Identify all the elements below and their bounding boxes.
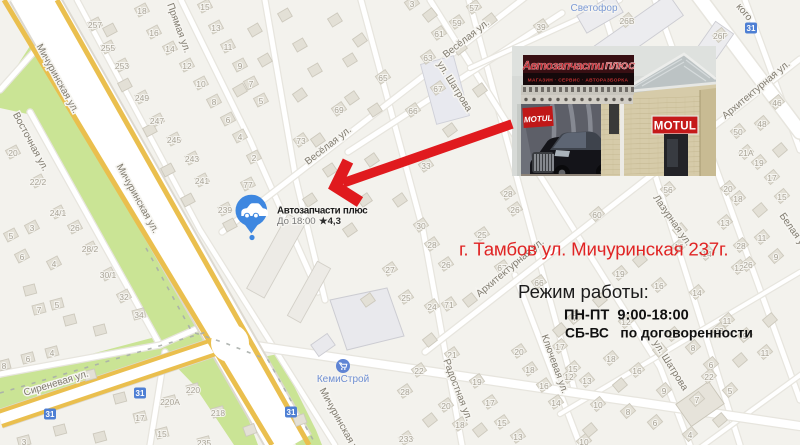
svg-text:9: 9: [238, 61, 243, 71]
svg-text:12: 12: [182, 61, 192, 71]
svg-text:5: 5: [55, 300, 60, 310]
svg-text:56: 56: [663, 185, 673, 195]
svg-text:241: 241: [195, 176, 209, 186]
svg-text:249: 249: [135, 93, 149, 103]
svg-text:14: 14: [692, 288, 702, 298]
svg-text:16: 16: [539, 381, 549, 391]
svg-text:16: 16: [632, 366, 642, 376]
svg-text:ПЛЮС: ПЛЮС: [605, 61, 635, 72]
svg-text:31: 31: [136, 389, 145, 398]
svg-text:13: 13: [513, 432, 523, 442]
svg-text:10: 10: [593, 400, 603, 410]
svg-text:9: 9: [662, 386, 667, 396]
svg-text:ПН-ПТ 9:00-18:00: ПН-ПТ 9:00-18:00: [564, 308, 689, 324]
svg-text:КемиСтрой: КемиСтрой: [317, 374, 369, 385]
svg-text:20: 20: [723, 184, 733, 194]
svg-text:10: 10: [579, 437, 589, 445]
svg-text:20: 20: [441, 401, 451, 411]
svg-text:До 18:00: До 18:00: [277, 216, 316, 227]
svg-text:22/2: 22/2: [30, 177, 47, 187]
svg-text:21А: 21А: [738, 148, 753, 158]
svg-text:Режим работы:: Режим работы:: [518, 281, 649, 302]
svg-text:13: 13: [211, 23, 221, 33]
svg-text:233: 233: [399, 434, 413, 444]
svg-text:15: 15: [777, 192, 787, 202]
svg-text:48: 48: [757, 119, 767, 129]
svg-text:26: 26: [70, 223, 80, 233]
svg-text:14: 14: [165, 44, 175, 54]
svg-text:30/1: 30/1: [100, 270, 117, 280]
svg-text:13: 13: [582, 376, 592, 386]
svg-text:71: 71: [444, 300, 454, 310]
svg-text:8: 8: [691, 343, 696, 353]
svg-text:31: 31: [46, 410, 55, 419]
svg-text:10: 10: [196, 79, 206, 89]
svg-text:6: 6: [26, 354, 31, 364]
svg-text:46: 46: [772, 98, 782, 108]
svg-text:15: 15: [157, 429, 167, 439]
svg-text:220: 220: [186, 385, 200, 395]
svg-text:32: 32: [119, 292, 129, 302]
svg-text:МАГАЗИН · СЕРВИС · АВТОРАЗБОРК: МАГАЗИН · СЕРВИС · АВТОРАЗБОРКА: [528, 78, 629, 84]
svg-text:13: 13: [720, 218, 730, 228]
svg-text:Автозапчасти плюс: Автозапчасти плюс: [277, 206, 368, 217]
svg-text:4: 4: [52, 259, 57, 269]
svg-text:8: 8: [2, 361, 7, 371]
svg-text:11: 11: [723, 316, 732, 326]
svg-text:218: 218: [211, 408, 225, 418]
svg-text:33: 33: [421, 161, 431, 171]
svg-text:7: 7: [37, 305, 42, 315]
svg-text:8: 8: [212, 97, 217, 107]
svg-text:19: 19: [615, 269, 625, 279]
svg-text:СБ-ВС по договоренности: СБ-ВС по договоренности: [565, 326, 753, 341]
svg-text:17: 17: [135, 413, 145, 423]
svg-text:5: 5: [9, 231, 14, 241]
svg-text:27: 27: [385, 265, 395, 275]
svg-text:31: 31: [747, 24, 756, 33]
svg-text:19: 19: [754, 158, 764, 168]
svg-text:7: 7: [249, 79, 254, 89]
svg-text:5: 5: [728, 386, 733, 396]
svg-text:28: 28: [400, 387, 410, 397]
svg-text:15: 15: [200, 2, 210, 12]
svg-text:26: 26: [743, 260, 753, 270]
svg-text:34: 34: [134, 310, 144, 320]
svg-text:★4,3: ★4,3: [319, 216, 341, 227]
svg-text:4: 4: [238, 132, 243, 142]
svg-text:77: 77: [243, 180, 253, 190]
svg-text:г. Тамбов ул. Мичуринская 237г: г. Тамбов ул. Мичуринская 237г.: [459, 239, 728, 260]
svg-text:24: 24: [427, 302, 437, 312]
svg-text:7: 7: [695, 395, 700, 405]
svg-text:245: 245: [167, 135, 181, 145]
svg-text:19: 19: [472, 377, 482, 387]
svg-text:18: 18: [525, 365, 535, 375]
svg-text:24/1: 24/1: [50, 208, 67, 218]
svg-text:6: 6: [709, 360, 714, 370]
svg-text:18: 18: [606, 354, 616, 364]
svg-text:31: 31: [287, 408, 296, 417]
svg-text:14: 14: [551, 398, 561, 408]
svg-text:6: 6: [226, 115, 231, 125]
svg-text:5: 5: [259, 96, 264, 106]
svg-text:18: 18: [733, 194, 743, 204]
svg-text:28: 28: [503, 189, 513, 199]
svg-text:253: 253: [115, 61, 129, 71]
svg-text:26: 26: [510, 205, 520, 215]
svg-text:9: 9: [774, 252, 779, 262]
svg-text:8: 8: [626, 407, 631, 417]
svg-text:26: 26: [441, 260, 451, 270]
svg-text:60: 60: [592, 210, 602, 220]
svg-text:3: 3: [30, 223, 35, 233]
svg-text:3: 3: [410, 0, 415, 9]
svg-text:61: 61: [434, 29, 444, 39]
svg-text:16: 16: [149, 28, 159, 38]
svg-text:26Г: 26Г: [713, 31, 727, 41]
svg-text:15: 15: [497, 418, 507, 428]
svg-text:63: 63: [423, 53, 433, 63]
svg-text:28: 28: [427, 240, 437, 250]
svg-text:28: 28: [736, 241, 746, 251]
svg-text:26В: 26В: [619, 16, 634, 26]
svg-text:255: 255: [101, 43, 115, 53]
svg-text:6: 6: [20, 252, 25, 262]
svg-text:66: 66: [408, 106, 418, 116]
svg-text:50: 50: [733, 127, 743, 137]
svg-text:MOTUL: MOTUL: [654, 121, 696, 133]
svg-text:11: 11: [761, 348, 770, 358]
svg-text:20: 20: [8, 148, 18, 158]
svg-text:25: 25: [401, 293, 411, 303]
svg-text:Светофор: Светофор: [570, 2, 617, 14]
svg-text:22: 22: [704, 372, 714, 382]
svg-text:239: 239: [218, 205, 232, 215]
svg-text:17: 17: [555, 342, 565, 352]
svg-text:73: 73: [296, 136, 306, 146]
svg-text:2: 2: [252, 153, 257, 163]
svg-text:30: 30: [416, 221, 426, 231]
svg-text:17: 17: [485, 398, 495, 408]
svg-text:59: 59: [452, 18, 462, 28]
svg-text:65: 65: [378, 73, 388, 83]
svg-text:15: 15: [568, 364, 578, 374]
svg-text:220А: 220А: [160, 397, 180, 407]
svg-text:Автозапчасти: Автозапчасти: [521, 61, 604, 73]
svg-text:17: 17: [767, 173, 777, 183]
svg-text:28/2: 28/2: [82, 244, 99, 254]
svg-text:3: 3: [22, 437, 27, 445]
svg-text:235: 235: [197, 438, 211, 445]
svg-text:20: 20: [514, 347, 524, 357]
svg-text:257: 257: [88, 20, 102, 30]
svg-text:16: 16: [654, 281, 664, 291]
svg-text:6: 6: [653, 418, 658, 428]
svg-text:39: 39: [536, 22, 546, 32]
svg-text:247: 247: [150, 116, 164, 126]
svg-text:243: 243: [185, 154, 199, 164]
svg-text:11: 11: [758, 233, 767, 243]
svg-text:4: 4: [50, 348, 55, 358]
svg-text:57: 57: [469, 3, 479, 13]
svg-text:11: 11: [224, 42, 233, 52]
svg-text:18: 18: [137, 6, 147, 16]
svg-text:67: 67: [433, 84, 443, 94]
svg-text:69: 69: [334, 105, 344, 115]
svg-text:4: 4: [688, 430, 693, 440]
svg-text:22: 22: [414, 366, 424, 376]
